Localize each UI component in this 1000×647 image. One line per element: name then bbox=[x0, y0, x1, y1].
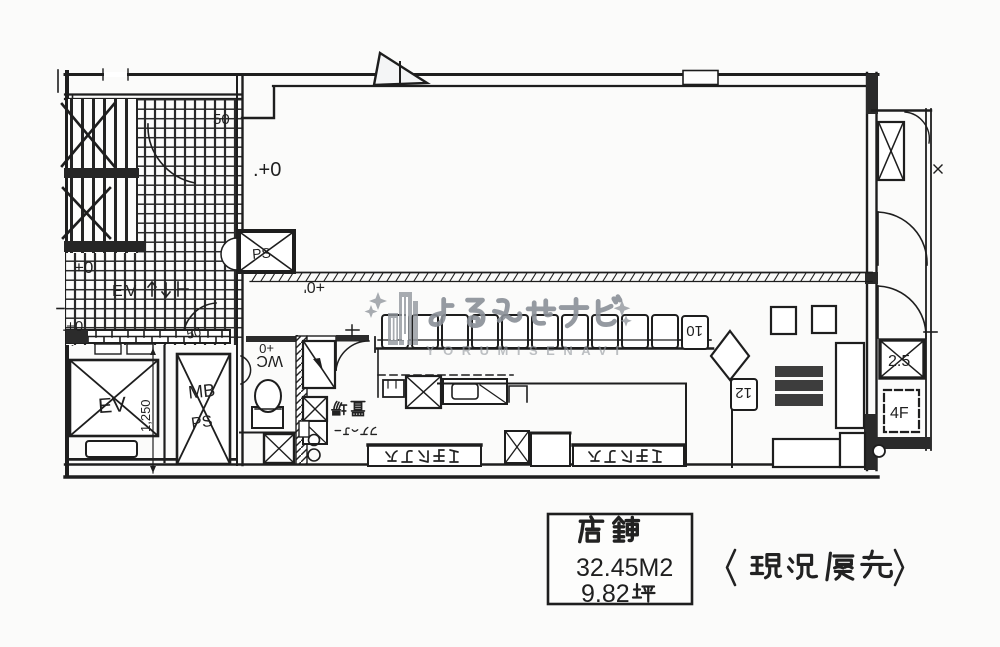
svg-text:9.82: 9.82 bbox=[581, 580, 630, 608]
svg-text:MB: MB bbox=[187, 380, 216, 403]
svg-text:2.5: 2.5 bbox=[888, 353, 910, 370]
svg-text:50: 50 bbox=[185, 324, 202, 342]
svg-text:10: 10 bbox=[686, 322, 703, 339]
svg-text:YORUMISENAVI: YORUMISENAVI bbox=[426, 343, 627, 358]
svg-text:+0: +0 bbox=[259, 341, 274, 356]
svg-text:+0: +0 bbox=[74, 258, 93, 277]
svg-text:EV: EV bbox=[112, 283, 139, 300]
svg-text:EV: EV bbox=[97, 393, 127, 418]
svg-text:.+0': .+0' bbox=[62, 318, 86, 335]
svg-text:4F: 4F bbox=[890, 405, 909, 422]
svg-text:+0': +0' bbox=[304, 278, 325, 295]
svg-text:PS: PS bbox=[190, 413, 214, 433]
svg-text:.+0: .+0 bbox=[253, 159, 281, 181]
svg-text:1,250: 1,250 bbox=[138, 399, 153, 432]
svg-text:50: 50 bbox=[213, 111, 230, 128]
svg-text:12: 12 bbox=[735, 384, 752, 401]
svg-text:32.45M2: 32.45M2 bbox=[576, 554, 673, 582]
svg-text:PS: PS bbox=[251, 244, 271, 262]
